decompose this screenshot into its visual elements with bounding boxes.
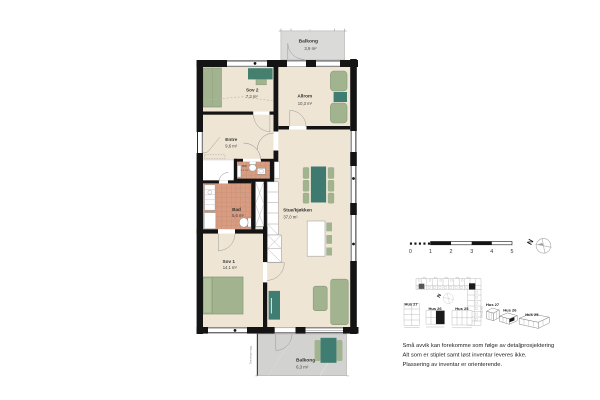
svg-text:Hus 25: Hus 25: [455, 306, 469, 311]
svg-text:3,9 m²: 3,9 m²: [304, 46, 317, 51]
svg-text:14,1 m²: 14,1 m²: [223, 265, 238, 270]
svg-text:3: 3: [470, 249, 473, 255]
svg-text:Entre: Entre: [225, 137, 237, 142]
svg-text:Sov 1: Sov 1: [223, 259, 236, 264]
svg-text:5,6 m²: 5,6 m²: [232, 213, 244, 218]
svg-text:N: N: [436, 293, 443, 299]
svg-text:Hus 26: Hus 26: [429, 306, 443, 311]
svg-text:Hus 27: Hus 27: [405, 302, 419, 307]
svg-text:Hus 27: Hus 27: [486, 302, 500, 307]
svg-text:Allrom: Allrom: [297, 94, 312, 99]
svg-text:10,3 m²: 10,3 m²: [298, 101, 313, 106]
svg-text:Sov 2: Sov 2: [246, 87, 259, 92]
svg-text:Alt som er stiplet samt løst i: Alt som er stiplet samt løst inventar le…: [403, 353, 527, 359]
svg-text:1,7 m²: 1,7 m²: [241, 168, 249, 172]
svg-text:0: 0: [409, 249, 412, 255]
svg-text:9,6 m²: 9,6 m²: [225, 144, 237, 149]
svg-text:24.02.05: 24.02.05: [480, 306, 484, 318]
svg-text:Plassering av inventar er orie: Plassering av inventar er orienterende.: [403, 362, 503, 368]
svg-text:Hus 25: Hus 25: [525, 312, 539, 317]
svg-text:N: N: [525, 237, 535, 246]
svg-text:1: 1: [429, 249, 432, 255]
svg-text:Stue/kjøkken: Stue/kjøkken: [283, 207, 312, 212]
svg-text:4: 4: [490, 249, 493, 255]
svg-text:Bæringsvegg: Bæringsvegg: [249, 346, 253, 365]
svg-text:7,3 m²: 7,3 m²: [246, 94, 258, 99]
svg-text:5: 5: [511, 249, 514, 255]
svg-text:6,3 m²: 6,3 m²: [296, 365, 309, 370]
svg-text:Bad: Bad: [232, 207, 241, 212]
svg-text:Balkong: Balkong: [299, 39, 318, 45]
svg-text:Balkong: Balkong: [296, 358, 315, 364]
svg-text:37,0 m²: 37,0 m²: [283, 215, 298, 220]
svg-text:Små avvik kan forekomme som fø: Små avvik kan forekomme som følge av det…: [403, 342, 555, 349]
svg-text:Hus 26: Hus 26: [503, 308, 517, 313]
svg-text:2: 2: [450, 249, 453, 255]
